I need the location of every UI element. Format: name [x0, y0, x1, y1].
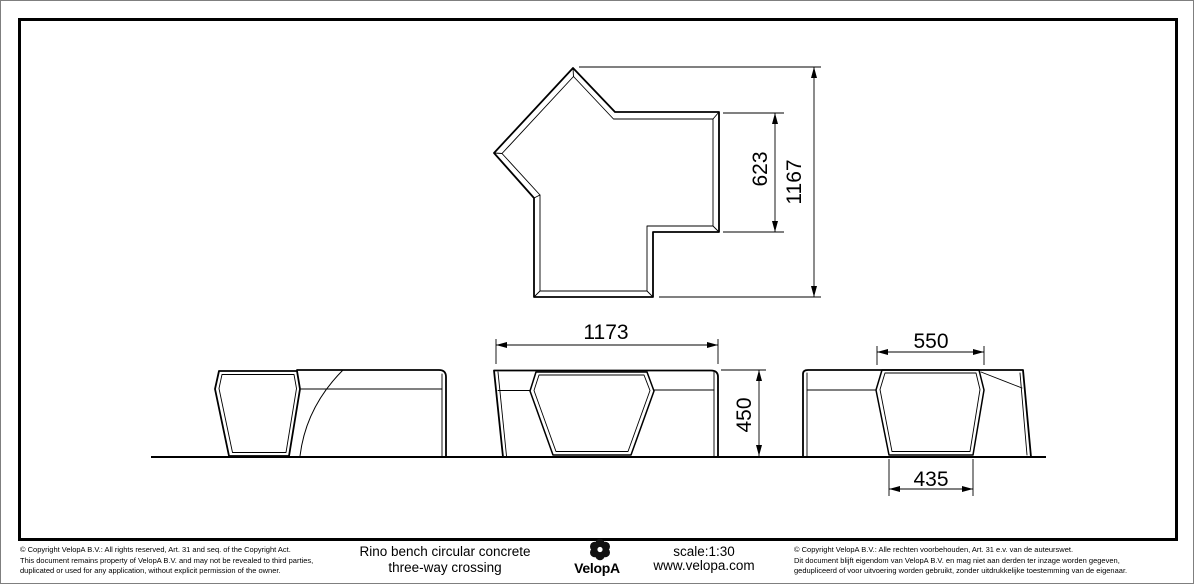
left-elevation-junction-curve [300, 370, 343, 456]
copyright-line: gedupliceerd of voor uitvoering worden g… [794, 566, 1127, 577]
left-elevation-end-face-bevel [219, 375, 297, 453]
scale-and-website: scale:1:30 www.velopa.com [642, 545, 766, 573]
copyright-line: This document remains property of VelopA… [20, 556, 313, 567]
top-view [494, 68, 719, 297]
left-elevation-arm-outline [297, 370, 446, 456]
website-url: www.velopa.com [642, 559, 766, 573]
front-elevation-dimension-arrows [496, 342, 762, 456]
technical-drawing-canvas: 623 1167 [1, 1, 1193, 583]
dim-text-450: 450 [733, 397, 756, 432]
dim-text-623: 623 [749, 151, 772, 186]
drawing-sheet: 623 1167 [0, 0, 1194, 584]
drawing-title: Rino bench circular concrete three-way c… [315, 544, 575, 576]
top-view-outer-outline [494, 68, 719, 297]
copyright-line: © Copyright VelopA B.V.: Alle rechten vo… [794, 545, 1127, 556]
copyright-line: Dit document blijft eigendom van VelopA … [794, 556, 1127, 567]
dim-text-1173: 1173 [583, 321, 628, 344]
front-elevation-outline [494, 371, 718, 458]
velopa-logo-text: VelopA [567, 560, 627, 576]
front-elevation-end-face [530, 372, 654, 455]
right-elevation-right-flank-bevel [981, 372, 1022, 388]
drawing-title-line1: Rino bench circular concrete [315, 544, 575, 560]
front-elevation [494, 371, 718, 458]
right-elevation-outline [803, 370, 1031, 457]
copyright-notice-dutch: © Copyright VelopA B.V.: Alle rechten vo… [794, 545, 1127, 577]
velopa-logo-icon [590, 539, 610, 560]
copyright-line: © Copyright VelopA B.V.: All rights rese… [20, 545, 313, 556]
scale-label: scale:1:30 [642, 545, 766, 559]
copyright-notice-english: © Copyright VelopA B.V.: All rights rese… [20, 545, 313, 577]
left-elevation [215, 370, 446, 456]
right-elevation [803, 370, 1031, 457]
copyright-line: duplicated or used for any application, … [20, 566, 313, 577]
front-elevation-end-face-bevel [534, 375, 650, 452]
dim-text-550: 550 [913, 330, 948, 353]
right-elevation-end-face-bevel [880, 373, 980, 452]
right-elevation-end-face [876, 370, 984, 455]
drawing-title-line2: three-way crossing [315, 560, 575, 576]
dim-text-435: 435 [913, 468, 948, 491]
right-elevation-right-edge-bevel [1020, 373, 1027, 455]
dim-text-1167: 1167 [783, 159, 806, 204]
extension-lines [496, 339, 766, 370]
